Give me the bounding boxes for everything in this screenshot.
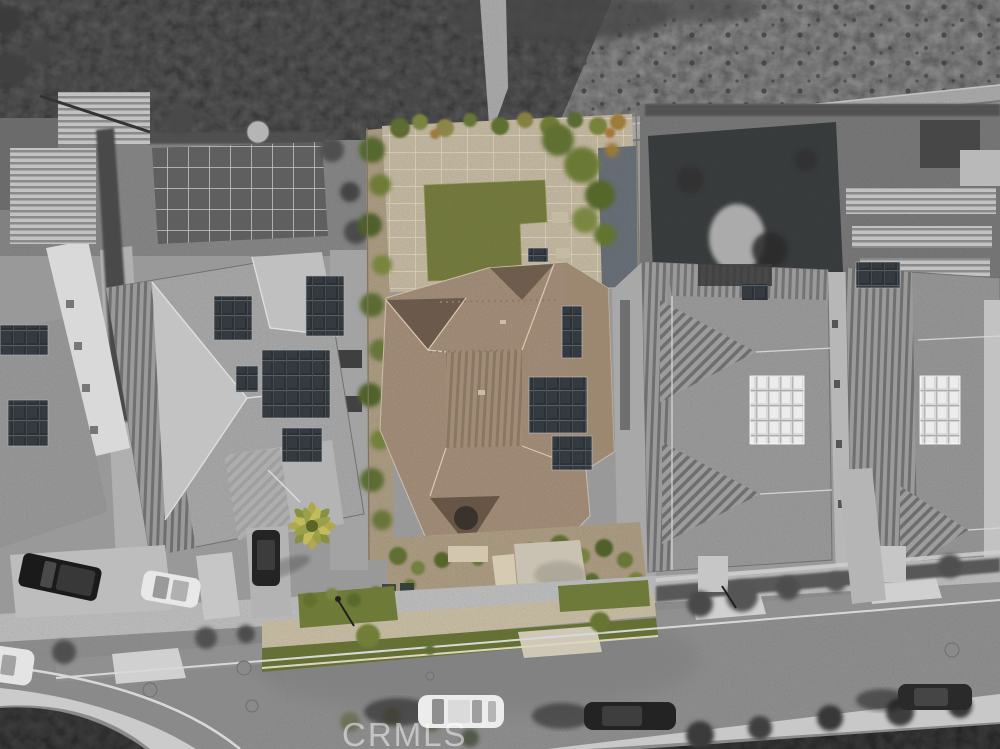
- white-pergola: [10, 148, 96, 244]
- pergola-rows: [846, 188, 996, 214]
- dark-van: [252, 530, 280, 586]
- hedge-row: [645, 104, 1000, 116]
- aerial-scene: CRMLS: [0, 0, 1000, 749]
- solar-array: [856, 262, 900, 288]
- subject-house: [380, 248, 614, 558]
- ribbed-roof-section: [446, 350, 522, 448]
- dark-sedan: [532, 702, 676, 730]
- crmls-watermark: CRMLS: [342, 716, 468, 749]
- gray-side-patio: [598, 146, 638, 288]
- bright-solar-array: [750, 376, 804, 444]
- solar-array: [0, 325, 48, 355]
- patio-table: [247, 121, 269, 143]
- right-neighbor-house: [642, 262, 832, 572]
- bright-solar-array: [920, 376, 960, 444]
- aerial-photo-canvas: CRMLS: [0, 0, 1000, 749]
